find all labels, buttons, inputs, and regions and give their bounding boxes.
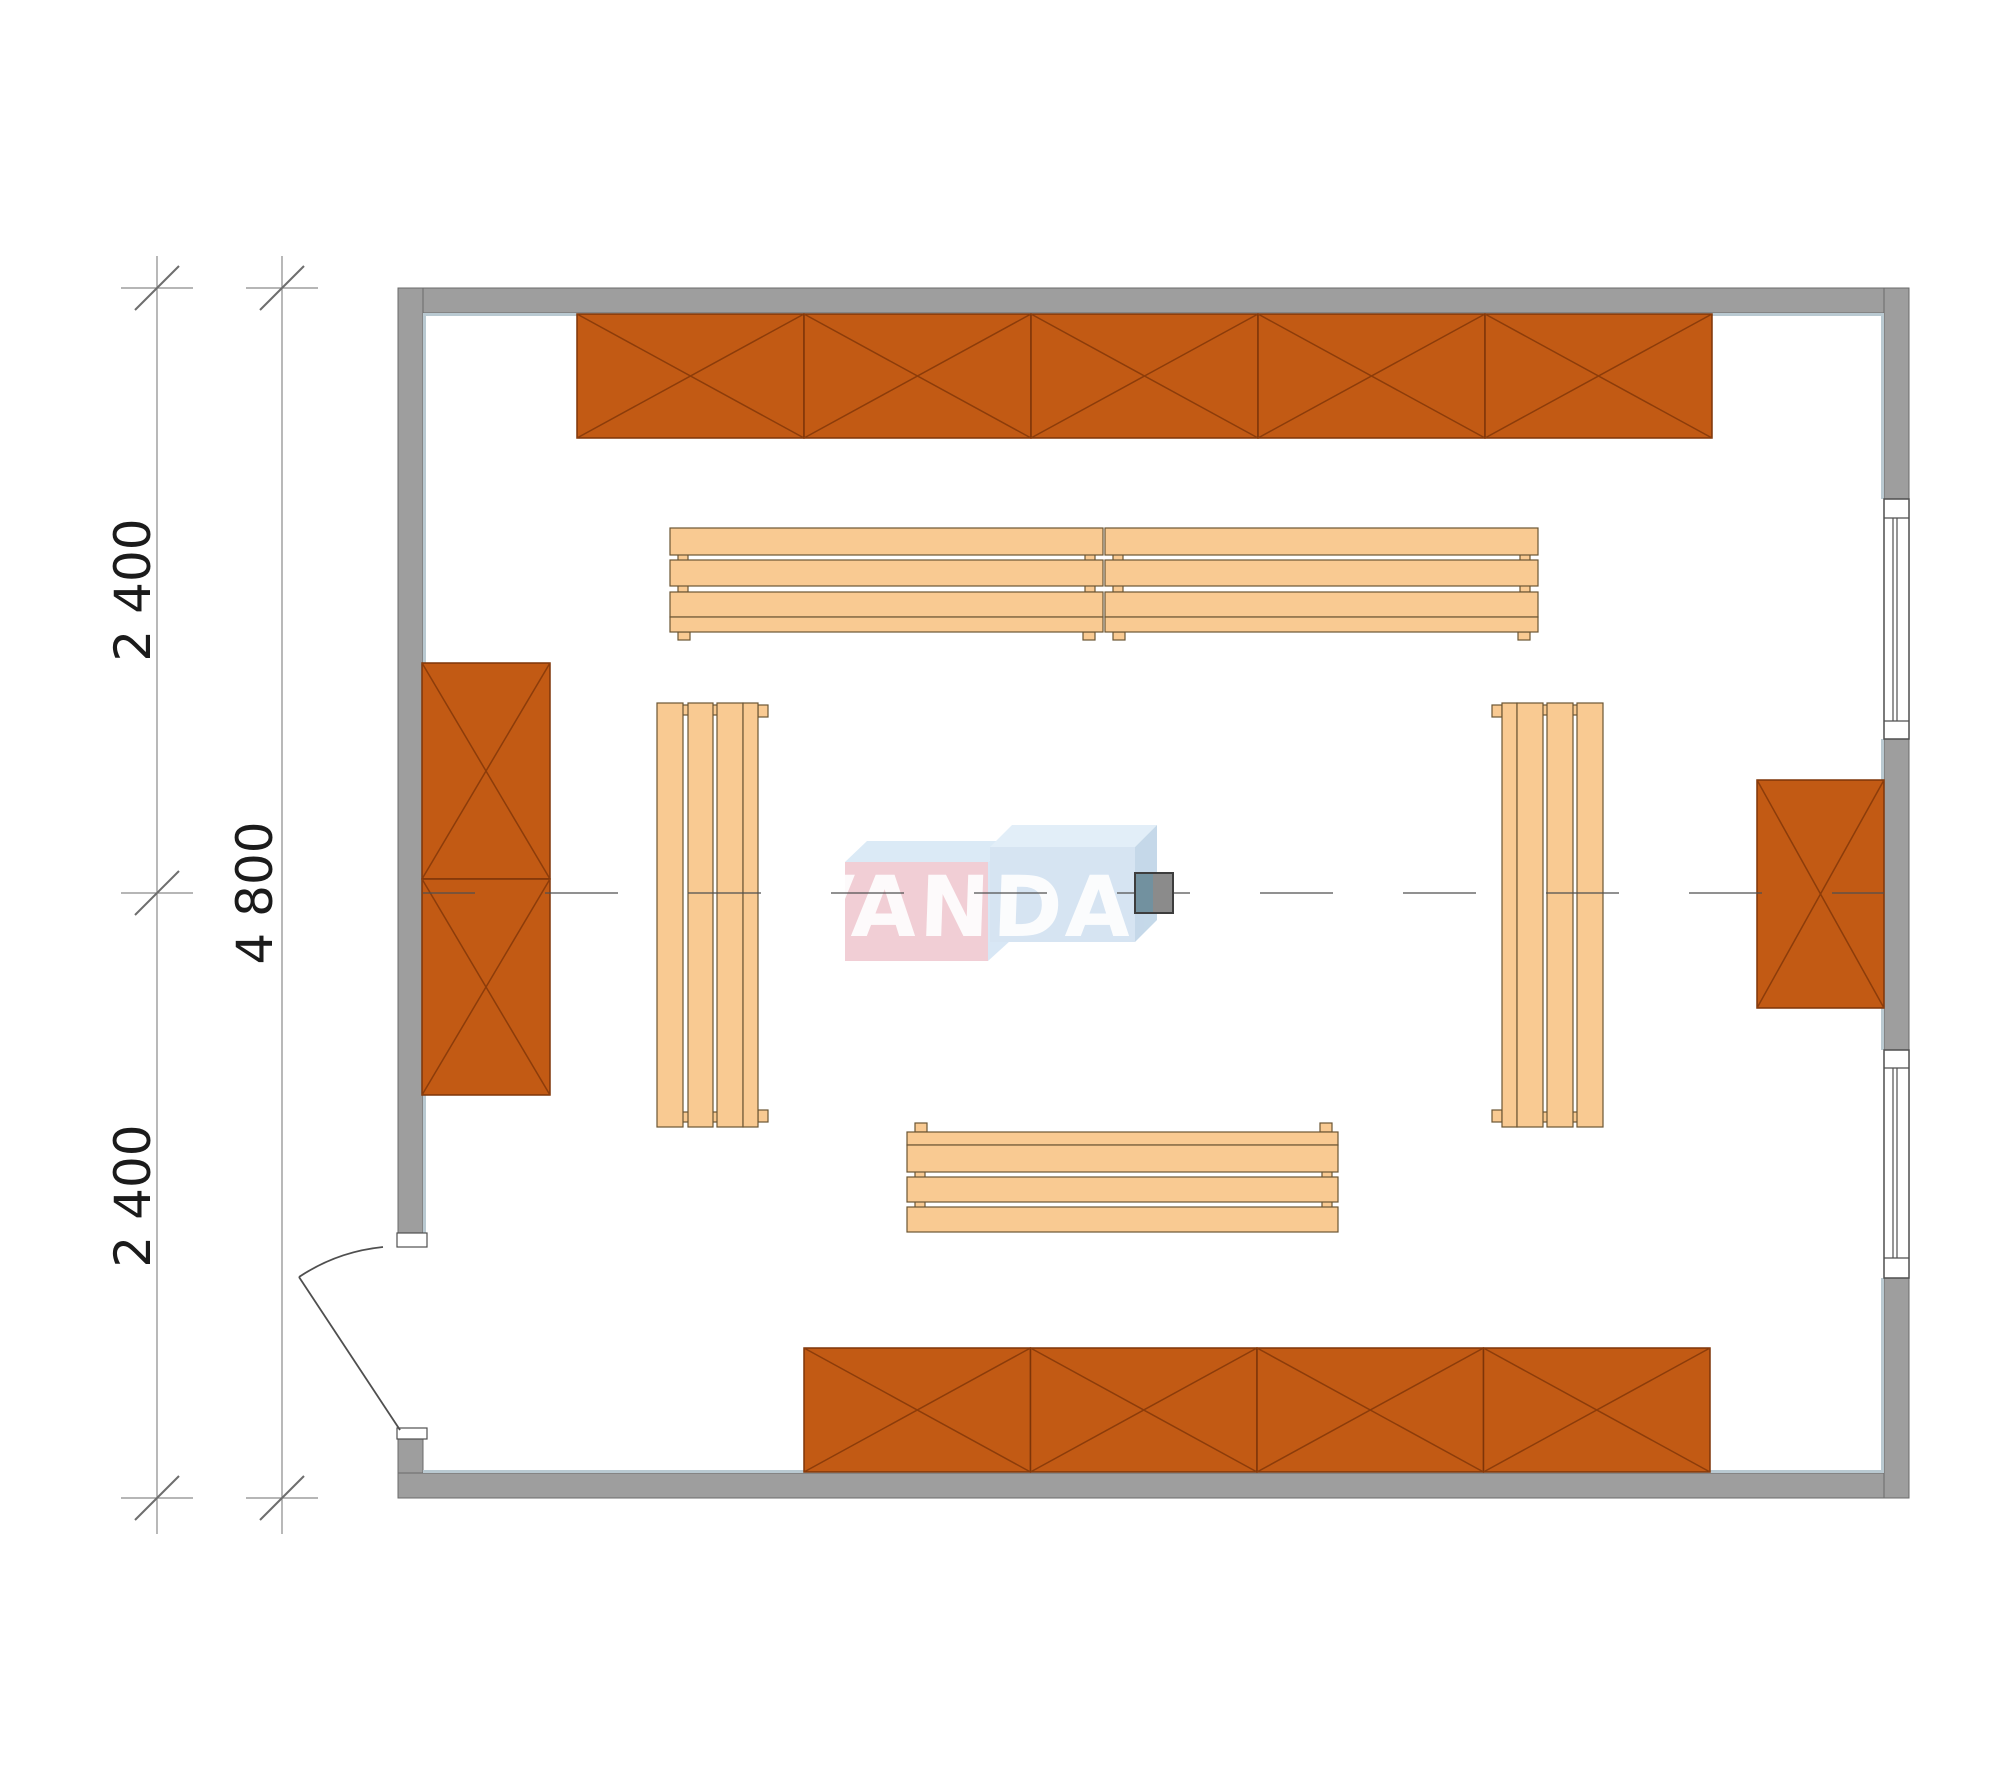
bench-slat <box>1517 703 1543 1127</box>
bench-bottom <box>907 1123 1338 1232</box>
dimension-chain: 2 400 2 400 4 800 <box>104 256 318 1534</box>
cabinet-row-bottom <box>804 1348 1710 1472</box>
cabinet-left <box>422 663 550 1095</box>
bench-front-plank <box>907 1132 1338 1145</box>
window-lower <box>1884 1050 1909 1278</box>
cabinet-right <box>1757 780 1884 1008</box>
cabinet-row-top <box>577 314 1712 438</box>
dimension-label-lower: 2 400 <box>104 1124 162 1267</box>
bench-front-plank <box>1105 617 1538 632</box>
bench-slat <box>907 1177 1338 1202</box>
cabinet-unit <box>1257 1348 1484 1472</box>
floor-plan-page: 2 400 2 400 4 800 <box>0 0 2000 1786</box>
door-jamb-bottom <box>397 1428 427 1439</box>
bench-front-plank <box>1502 703 1517 1127</box>
bench-slat <box>1105 560 1538 586</box>
bench-slat <box>688 703 713 1127</box>
wall-right-middle <box>1884 739 1909 1050</box>
door-jamb-top <box>397 1233 427 1247</box>
bench-slat <box>670 592 1103 617</box>
heater <box>1135 873 1173 913</box>
door-leaf <box>299 1277 400 1430</box>
bench-left <box>657 703 768 1127</box>
bench-top-right <box>1105 528 1538 640</box>
window-upper <box>1884 499 1909 739</box>
bench-slat <box>670 560 1103 586</box>
cabinet-unit <box>1031 1348 1258 1472</box>
wall-top <box>398 288 1909 313</box>
door <box>299 1233 427 1439</box>
cabinet-unit <box>1757 780 1884 1008</box>
wall-right-upper <box>1884 288 1909 499</box>
bench-front-plank <box>743 703 758 1127</box>
watermark-text: VANDA <box>787 858 1135 956</box>
bench-top-left <box>670 528 1103 640</box>
bench-right <box>1492 703 1603 1127</box>
bench-slat <box>670 528 1103 555</box>
bench-slat <box>717 703 743 1127</box>
cabinet-unit <box>577 314 804 438</box>
door-swing-arc <box>299 1247 383 1277</box>
wall-right-lower <box>1884 1278 1909 1498</box>
dimension-label-upper: 2 400 <box>104 518 162 661</box>
wall-left <box>398 288 423 1233</box>
bench-slat <box>907 1145 1338 1172</box>
cabinet-unit <box>422 663 550 879</box>
bench-slat <box>657 703 683 1127</box>
cabinet-unit <box>1485 314 1712 438</box>
bench-slat <box>907 1207 1338 1232</box>
wall-bottom <box>398 1473 1909 1498</box>
bench-front-plank <box>670 617 1103 632</box>
bench-slat <box>1105 528 1538 555</box>
bench-slat <box>1547 703 1573 1127</box>
bench-slat <box>1105 592 1538 617</box>
cabinet-unit <box>1258 314 1485 438</box>
bench-slat <box>1577 703 1603 1127</box>
cabinet-unit <box>804 1348 1031 1472</box>
floor-plan-drawing: 2 400 2 400 4 800 <box>0 0 2000 1786</box>
cabinet-unit <box>422 879 550 1095</box>
cabinet-unit <box>1031 314 1258 438</box>
dimension-label-total: 4 800 <box>226 821 284 964</box>
cabinet-unit <box>804 314 1031 438</box>
cabinet-unit <box>1484 1348 1711 1472</box>
